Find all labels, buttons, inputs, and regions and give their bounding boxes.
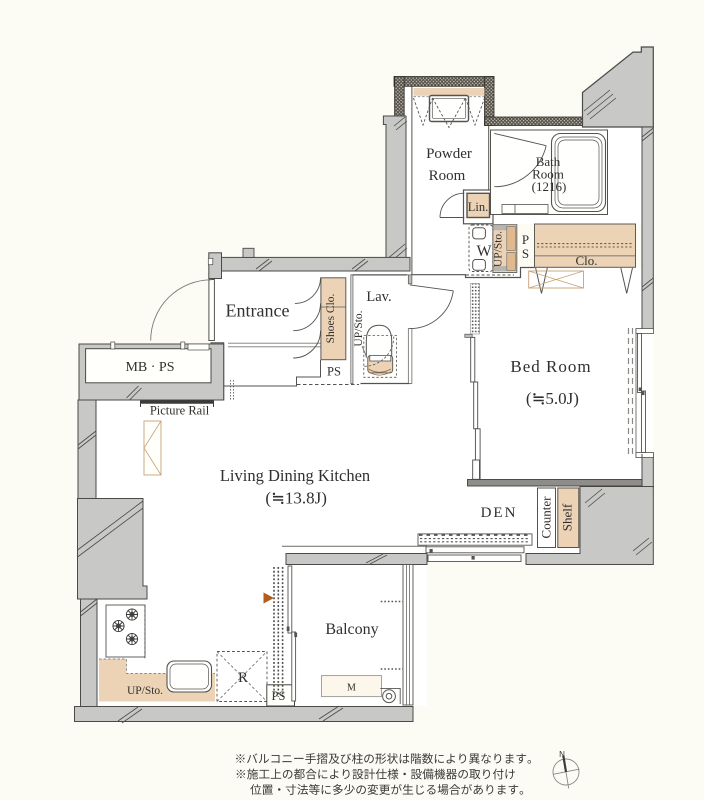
- svg-text:Clo.: Clo.: [575, 253, 597, 268]
- svg-text:Counter: Counter: [539, 496, 554, 539]
- svg-text:PS: PS: [272, 689, 286, 703]
- svg-text:Lav.: Lav.: [366, 289, 391, 305]
- svg-text:(: (: [265, 489, 271, 508]
- svg-text:P: P: [522, 232, 529, 247]
- svg-text:Picture Rail: Picture Rail: [150, 404, 210, 418]
- svg-text:UP/Sto.: UP/Sto.: [493, 231, 505, 267]
- svg-text:5.0J): 5.0J): [545, 389, 579, 408]
- svg-text:R: R: [238, 670, 248, 686]
- svg-text:M: M: [347, 683, 356, 694]
- svg-text:Living Dining Kitchen: Living Dining Kitchen: [220, 466, 370, 485]
- svg-text:Shoes Clo.: Shoes Clo.: [325, 293, 337, 343]
- svg-text:Room: Room: [429, 168, 466, 184]
- svg-text:13.8J): 13.8J): [285, 489, 327, 508]
- svg-text:(: (: [526, 389, 532, 408]
- svg-text:UP/Sto.: UP/Sto.: [353, 310, 365, 346]
- svg-text:UP/Sto.: UP/Sto.: [127, 685, 163, 697]
- svg-text:S: S: [522, 246, 529, 261]
- svg-text:(1216): (1216): [532, 179, 567, 194]
- svg-text:W: W: [476, 243, 492, 260]
- svg-text:Lin.: Lin.: [468, 200, 488, 214]
- svg-text:Powder: Powder: [426, 146, 472, 162]
- svg-text:Balcony: Balcony: [325, 621, 378, 638]
- svg-text:PS: PS: [327, 365, 341, 379]
- svg-text:DEN: DEN: [481, 505, 518, 521]
- svg-text:Bed Room: Bed Room: [510, 357, 591, 376]
- svg-text:MB · PS: MB · PS: [125, 360, 174, 375]
- svg-text:Entrance: Entrance: [226, 301, 290, 321]
- svg-text:Shelf: Shelf: [560, 503, 575, 531]
- svg-text:N: N: [559, 750, 565, 759]
